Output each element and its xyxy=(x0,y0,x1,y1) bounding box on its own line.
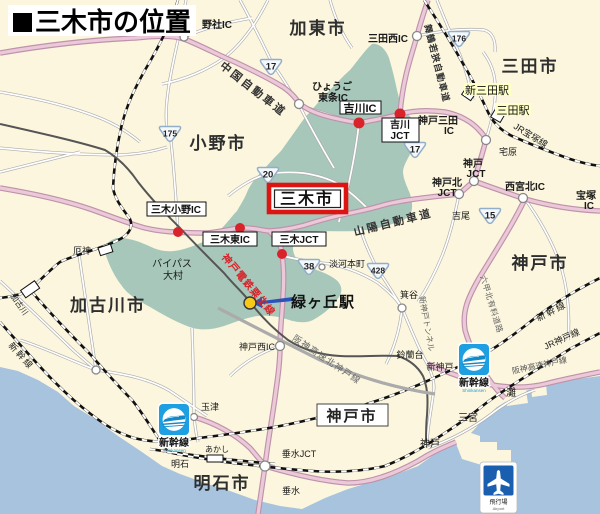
svg-text:JCT: JCT xyxy=(467,169,486,180)
svg-text:加古川市: 加古川市 xyxy=(69,295,146,315)
svg-text:176: 176 xyxy=(452,34,466,44)
svg-text:小野市: 小野市 xyxy=(190,133,247,153)
svg-text:厄神: 厄神 xyxy=(73,245,91,256)
svg-text:神戸: 神戸 xyxy=(420,437,440,450)
svg-text:淡河本町: 淡河本町 xyxy=(329,258,365,269)
svg-text:箕谷: 箕谷 xyxy=(400,289,418,300)
svg-text:あかし: あかし xyxy=(205,445,229,454)
svg-text:加東市: 加東市 xyxy=(289,18,347,38)
svg-text:三田西IC: 三田西IC xyxy=(368,33,408,45)
svg-text:灘: 灘 xyxy=(506,386,516,399)
svg-text:JCT: JCT xyxy=(438,188,457,199)
svg-text:バイパス: バイパス xyxy=(152,258,192,270)
svg-text:JCT: JCT xyxy=(391,131,410,142)
svg-text:15: 15 xyxy=(485,211,496,222)
svg-text:宅原: 宅原 xyxy=(499,146,517,157)
svg-text:飛行場: 飛行場 xyxy=(489,498,507,506)
svg-text:吉川: 吉川 xyxy=(390,118,410,131)
svg-text:明石: 明石 xyxy=(171,459,189,469)
svg-text:三木市: 三木市 xyxy=(280,189,334,208)
svg-text:Shinkansen: Shinkansen xyxy=(162,448,186,453)
svg-text:三木市の位置: 三木市の位置 xyxy=(35,7,191,37)
svg-text:ひょうご: ひょうご xyxy=(312,80,353,93)
svg-text:20: 20 xyxy=(263,170,274,181)
svg-text:175: 175 xyxy=(163,129,177,139)
svg-text:野社IC: 野社IC xyxy=(202,18,232,31)
svg-text:Airport: Airport xyxy=(493,506,506,511)
svg-text:三木東IC: 三木東IC xyxy=(210,233,250,246)
svg-text:IC: IC xyxy=(584,201,594,212)
svg-text:神戸西IC: 神戸西IC xyxy=(239,341,276,352)
svg-text:428: 428 xyxy=(371,266,385,276)
svg-text:三木小野IC: 三木小野IC xyxy=(151,203,201,216)
svg-text:17: 17 xyxy=(410,145,421,156)
svg-text:吉尾: 吉尾 xyxy=(452,211,470,221)
svg-text:三宮: 三宮 xyxy=(458,411,478,424)
svg-text:西宮北IC: 西宮北IC xyxy=(505,180,545,193)
svg-text:IC: IC xyxy=(444,126,454,137)
svg-text:三田駅: 三田駅 xyxy=(497,104,530,117)
svg-text:新三田駅: 新三田駅 xyxy=(465,83,509,97)
svg-text:三田市: 三田市 xyxy=(502,56,559,76)
svg-text:三木JCT: 三木JCT xyxy=(280,233,319,246)
svg-text:明石市: 明石市 xyxy=(194,473,251,493)
svg-text:緑ヶ丘駅: 緑ヶ丘駅 xyxy=(291,293,355,311)
svg-text:38: 38 xyxy=(304,262,315,273)
svg-text:垂水JCT: 垂水JCT xyxy=(282,448,317,459)
svg-text:大村: 大村 xyxy=(163,269,183,282)
svg-text:神戸市: 神戸市 xyxy=(326,407,377,425)
svg-text:17: 17 xyxy=(266,62,277,73)
svg-text:垂水: 垂水 xyxy=(282,485,300,496)
svg-text:神戸市: 神戸市 xyxy=(512,253,569,273)
svg-text:吉川IC: 吉川IC xyxy=(344,101,377,115)
svg-text:Shinkansen: Shinkansen xyxy=(462,388,486,393)
svg-text:鈴蘭台: 鈴蘭台 xyxy=(396,349,423,360)
svg-text:新神戸: 新神戸 xyxy=(426,361,453,372)
svg-text:玉津: 玉津 xyxy=(201,402,219,412)
